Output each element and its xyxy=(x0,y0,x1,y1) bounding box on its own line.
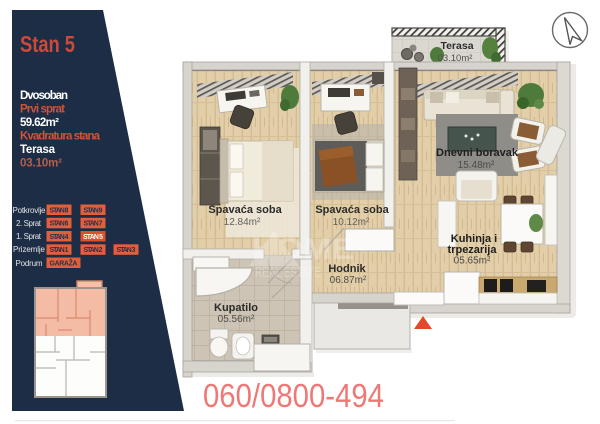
svg-text:trpezarija: trpezarija xyxy=(448,244,498,256)
svg-text:59.62m²: 59.62m² xyxy=(20,117,59,129)
svg-text:12.84m²: 12.84m² xyxy=(224,217,261,228)
svg-text:10.12m²: 10.12m² xyxy=(333,217,370,228)
svg-text:05.56m²: 05.56m² xyxy=(218,314,255,325)
svg-text:060/0800-494: 060/0800-494 xyxy=(203,377,384,414)
svg-text:Spavaća soba: Spavaća soba xyxy=(208,204,282,216)
svg-text:Spavaća soba: Spavaća soba xyxy=(315,204,389,216)
svg-text:Terasa: Terasa xyxy=(440,40,473,52)
svg-text:STAN 8: STAN 8 xyxy=(50,207,69,214)
svg-text:Podrum: Podrum xyxy=(16,259,43,268)
svg-text:03.10m²: 03.10m² xyxy=(20,158,62,170)
svg-text:05.65m²: 05.65m² xyxy=(454,256,491,267)
svg-text:STAN 7: STAN 7 xyxy=(84,221,103,228)
svg-text:STAN 1: STAN 1 xyxy=(50,247,69,254)
svg-text:Prizemlje: Prizemlje xyxy=(13,245,46,254)
svg-text:STAN 5: STAN 5 xyxy=(83,234,103,241)
svg-text:2. Sprat: 2. Sprat xyxy=(16,219,42,228)
svg-text:STAN 3: STAN 3 xyxy=(117,247,136,254)
svg-text:Dnevni boravak: Dnevni boravak xyxy=(436,147,519,159)
svg-text:Prvi sprat: Prvi sprat xyxy=(20,104,65,116)
svg-text:STAN 9: STAN 9 xyxy=(84,207,103,214)
svg-text:STAN 2: STAN 2 xyxy=(84,247,103,254)
svg-text:Dvosoban: Dvosoban xyxy=(20,90,68,102)
svg-text:Stan 5: Stan 5 xyxy=(20,31,75,57)
svg-text:STAN 6: STAN 6 xyxy=(50,221,69,228)
svg-text:REAL ESTATE: REAL ESTATE xyxy=(255,265,321,281)
svg-text:Kvadratura stana: Kvadratura stana xyxy=(20,131,101,143)
svg-text:STAN 4: STAN 4 xyxy=(50,234,69,241)
svg-text:GARAŽA: GARAŽA xyxy=(50,258,78,267)
svg-text:Kupatilo: Kupatilo xyxy=(214,302,258,314)
svg-text:06.87m²: 06.87m² xyxy=(330,275,367,286)
svg-text:Terasa: Terasa xyxy=(20,144,56,156)
svg-text:15.48m²: 15.48m² xyxy=(458,160,495,171)
svg-text:HOME: HOME xyxy=(252,231,354,266)
svg-text:1. Sprat: 1. Sprat xyxy=(16,232,42,241)
svg-text:Potkrovlje: Potkrovlje xyxy=(13,206,47,215)
